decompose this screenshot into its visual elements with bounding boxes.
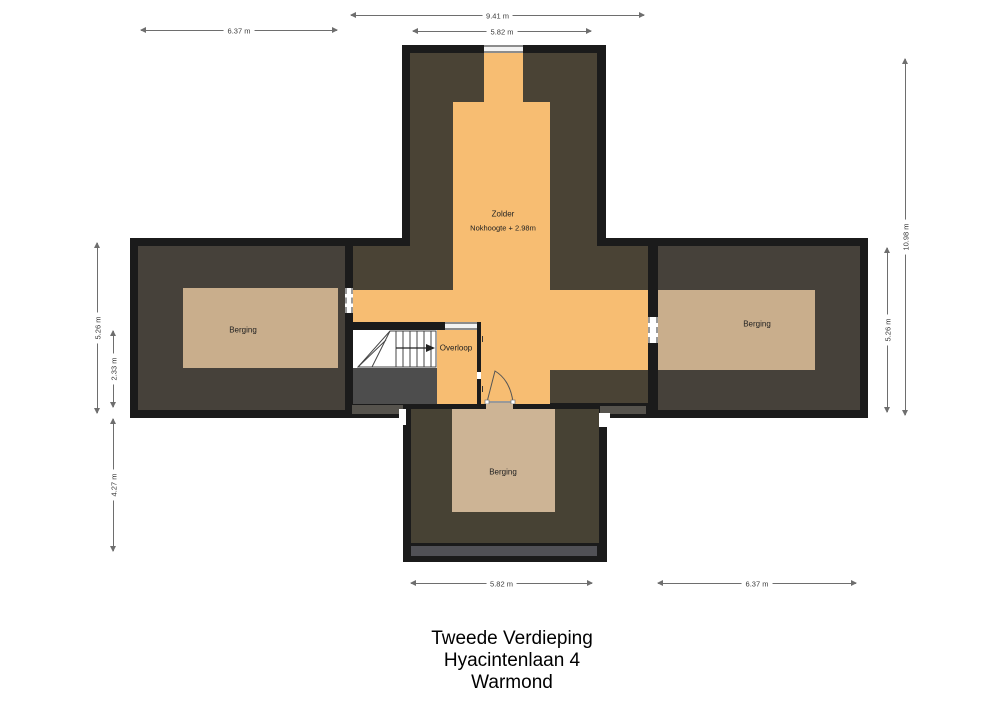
plan-title-floor: Tweede Verdieping — [24, 628, 1000, 650]
dimension-top-total: 9.41 m — [350, 11, 645, 20]
dimension-left-stair: 2.33 m — [109, 330, 118, 408]
stairs-icon — [352, 330, 437, 368]
wall-gray-strip-left — [352, 405, 403, 414]
overloop-floor — [437, 330, 481, 404]
wall-notch-left — [399, 409, 406, 425]
berging-left-label: Berging — [229, 327, 257, 336]
zolder-label: Zolder — [492, 211, 515, 220]
berging-left-floor — [183, 288, 338, 368]
dimension-right-total: 10.98 m — [901, 58, 910, 416]
plan-title-city: Warmond — [24, 672, 1000, 694]
dimension-top-left: 6.37 m — [140, 26, 338, 35]
berging-bottom-label: Berging — [489, 469, 517, 478]
opening-right — [648, 317, 658, 343]
zolder-floor-band — [353, 290, 648, 322]
dimension-bottom-right: 6.37 m — [657, 579, 857, 588]
wall-door-vertical — [477, 322, 481, 404]
berging-bottom-floor — [452, 409, 555, 512]
zolder-floor-right — [481, 322, 648, 370]
overloop-label: Overloop — [440, 345, 472, 354]
zolder-sublabel: Nokhoogte + 2.98m — [470, 224, 536, 233]
dimension-bottom-center: 5.82 m — [410, 579, 593, 588]
wall-notch-right — [599, 413, 610, 427]
dimension-left-lower: 4.27 m — [109, 418, 118, 552]
opening-left — [345, 288, 353, 313]
dimension-left-bar: 5.26 m — [93, 242, 102, 414]
door-tick-upper — [482, 336, 483, 342]
under-stair-void — [352, 368, 437, 404]
wall-stair-top — [352, 322, 445, 330]
plan-title: Tweede Verdieping Hyacintenlaan 4 Warmon… — [24, 628, 1000, 694]
plan-title-address: Hyacintenlaan 4 — [24, 650, 1000, 672]
zolder-floor-neck — [484, 52, 523, 102]
door-tick-lower — [482, 386, 483, 392]
zolder-floor-column — [453, 102, 550, 290]
stair-railing-window — [445, 322, 477, 330]
top-window — [484, 45, 523, 53]
dimension-right-bar: 5.26 m — [883, 247, 892, 413]
dormer-strip-bottom — [411, 546, 597, 556]
door-arc-icon — [484, 368, 516, 404]
dimension-top-inner: 5.82 m — [412, 27, 592, 36]
berging-right-label: Berging — [743, 321, 771, 330]
berging-right-floor — [658, 290, 815, 370]
floorplan-canvas: Zolder Nokhoogte + 2.98m Overloop Bergin… — [0, 0, 1000, 707]
door-jamb-mark — [477, 372, 481, 379]
